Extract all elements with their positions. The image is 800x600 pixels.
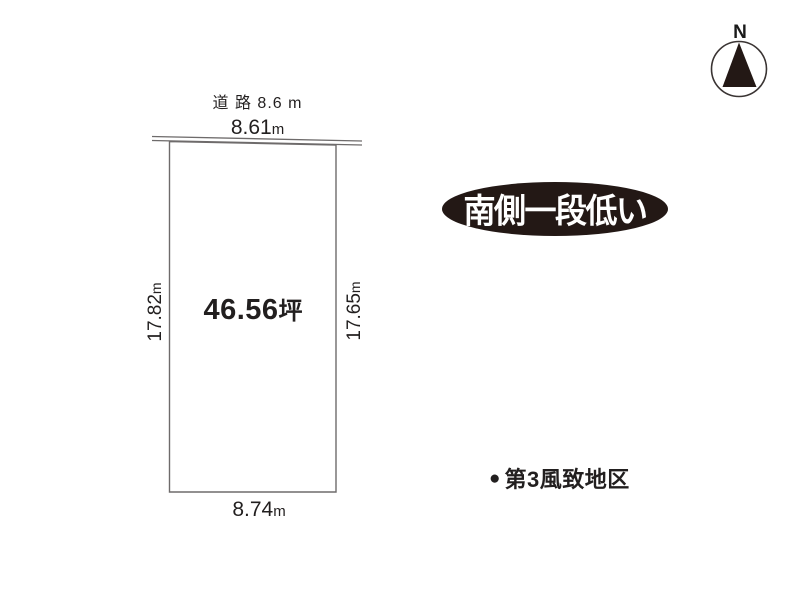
dimension-value: 17.65	[344, 293, 365, 341]
dimension-unit: m	[347, 281, 363, 293]
zoning-note: ● 第3風致地区	[489, 462, 630, 494]
dimension-left-depth: 17.82m	[145, 252, 165, 372]
dimension-value: 17.82	[145, 294, 166, 342]
plot-outline-drawing	[0, 0, 800, 600]
bullet-icon: ●	[489, 469, 500, 488]
dimension-unit: m	[148, 282, 164, 294]
plot-area-label: 46.56坪	[170, 291, 336, 327]
road-label: 道 路 8.6 m	[175, 89, 340, 113]
dimension-unit: m	[273, 503, 286, 520]
compass-icon	[705, 35, 775, 105]
area-unit: 坪	[279, 298, 303, 325]
dimension-value: 8.74	[232, 498, 273, 521]
dimension-top-width: 8.61m	[175, 116, 340, 140]
dimension-unit: m	[272, 121, 285, 138]
condition-badge: 南側一段低い	[442, 182, 668, 236]
area-value: 46.56	[203, 294, 278, 326]
dimension-value: 8.61	[231, 116, 272, 139]
dimension-bottom-width: 8.74m	[179, 498, 339, 522]
zoning-note-text: 第3風致地区	[504, 462, 629, 494]
lot-plan-diagram: N 道 路 8.6 m 8.61m 17.82m 17.65m 46.56坪 8…	[0, 0, 800, 600]
condition-badge-text: 南側一段低い	[463, 185, 646, 233]
dimension-right-depth: 17.65m	[344, 251, 364, 371]
north-arrow-icon	[723, 43, 757, 88]
